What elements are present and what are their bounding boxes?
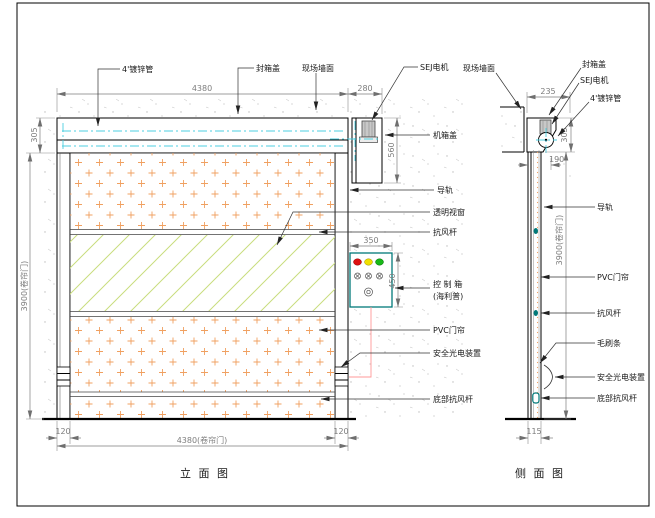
transparent-window — [70, 235, 335, 311]
side-wind-bar-1 — [534, 228, 538, 234]
dim-side-door-height: 3900(卷帘门) — [554, 215, 564, 266]
label-window: 透明视窗 — [433, 207, 465, 217]
dim-top-width: 4380 — [192, 84, 212, 93]
wall-hatch-left — [44, 108, 57, 419]
label-control-box-2: (海利普) — [433, 291, 463, 301]
label-wall: 现场墙面 — [302, 63, 334, 73]
side-label-pipe: 4'镀锌管 — [590, 93, 621, 103]
side-label-motor: SEJ电机 — [580, 75, 609, 85]
side-label-rail: 导轨 — [597, 202, 613, 212]
indicator-green — [376, 259, 384, 265]
dim-control-box-width: 350 — [363, 236, 378, 245]
side-label-bottom-bar: 底部抗风杆 — [597, 393, 637, 403]
side-label-safety: 安全光电装置 — [597, 372, 645, 382]
front-view: 4380 280 305 3900(卷帘门) 560 350 450 120 1… — [19, 62, 481, 480]
dim-side-box-height: 305 — [560, 127, 569, 142]
drawing-canvas: 4380 280 305 3900(卷帘门) 560 350 450 120 1… — [0, 0, 655, 518]
dim-left-rail: 120 — [55, 427, 70, 436]
label-machine-cover: 机箱盖 — [433, 130, 457, 140]
side-label-curtain: PVC门帘 — [597, 272, 629, 282]
safety-photocell-right — [335, 367, 348, 386]
dim-bottom-width: 4380(卷帘门) — [177, 435, 228, 445]
side-label-wind-bar: 抗风杆 — [597, 308, 621, 318]
dim-motor-box-height: 560 — [387, 142, 396, 157]
dim-side-base-width: 115 — [526, 427, 541, 436]
dim-door-height: 3900(卷帘门) — [19, 261, 29, 312]
indicator-yellow — [365, 259, 373, 265]
side-label-seal-cover: 封箱盖 — [582, 59, 606, 69]
dim-motor-box-width: 280 — [357, 84, 372, 93]
side-bottom-bar — [533, 393, 539, 403]
label-pipe: 4'镀锌管 — [122, 64, 153, 74]
label-safety: 安全光电装置 — [433, 348, 481, 358]
label-rail: 导轨 — [437, 185, 453, 195]
label-wind-bar: 抗风杆 — [433, 227, 457, 237]
dim-right-rail: 120 — [333, 427, 348, 436]
dim-side-box-width: 235 — [540, 87, 555, 96]
wall-hatch-top — [58, 99, 345, 117]
indicator-red — [354, 259, 362, 265]
control-box — [350, 253, 392, 307]
side-wall-hatch — [499, 108, 523, 151]
dim-side-rail-depth: 190 — [549, 155, 564, 164]
front-view-title: 立 面 图 — [180, 466, 230, 480]
emergency-button — [365, 288, 373, 296]
label-curtain: PVC门帘 — [433, 325, 465, 335]
side-wind-bar-2 — [534, 310, 538, 316]
safety-photocell-left — [57, 367, 70, 386]
label-seal-cover: 封箱盖 — [256, 63, 280, 73]
dim-header-height: 305 — [30, 127, 39, 142]
label-control-box-1: 控 制 箱 — [433, 279, 462, 289]
side-label-wall: 现场墙面 — [463, 63, 495, 73]
side-motor — [540, 120, 551, 134]
header-box — [57, 118, 348, 153]
label-bottom-bar: 底部抗风杆 — [433, 394, 473, 404]
dim-control-box-height: 450 — [388, 273, 397, 288]
side-view-title: 侧 面 图 — [515, 467, 565, 480]
label-motor: SEJ电机 — [420, 62, 449, 72]
side-label-brush: 毛刷条 — [597, 338, 621, 348]
